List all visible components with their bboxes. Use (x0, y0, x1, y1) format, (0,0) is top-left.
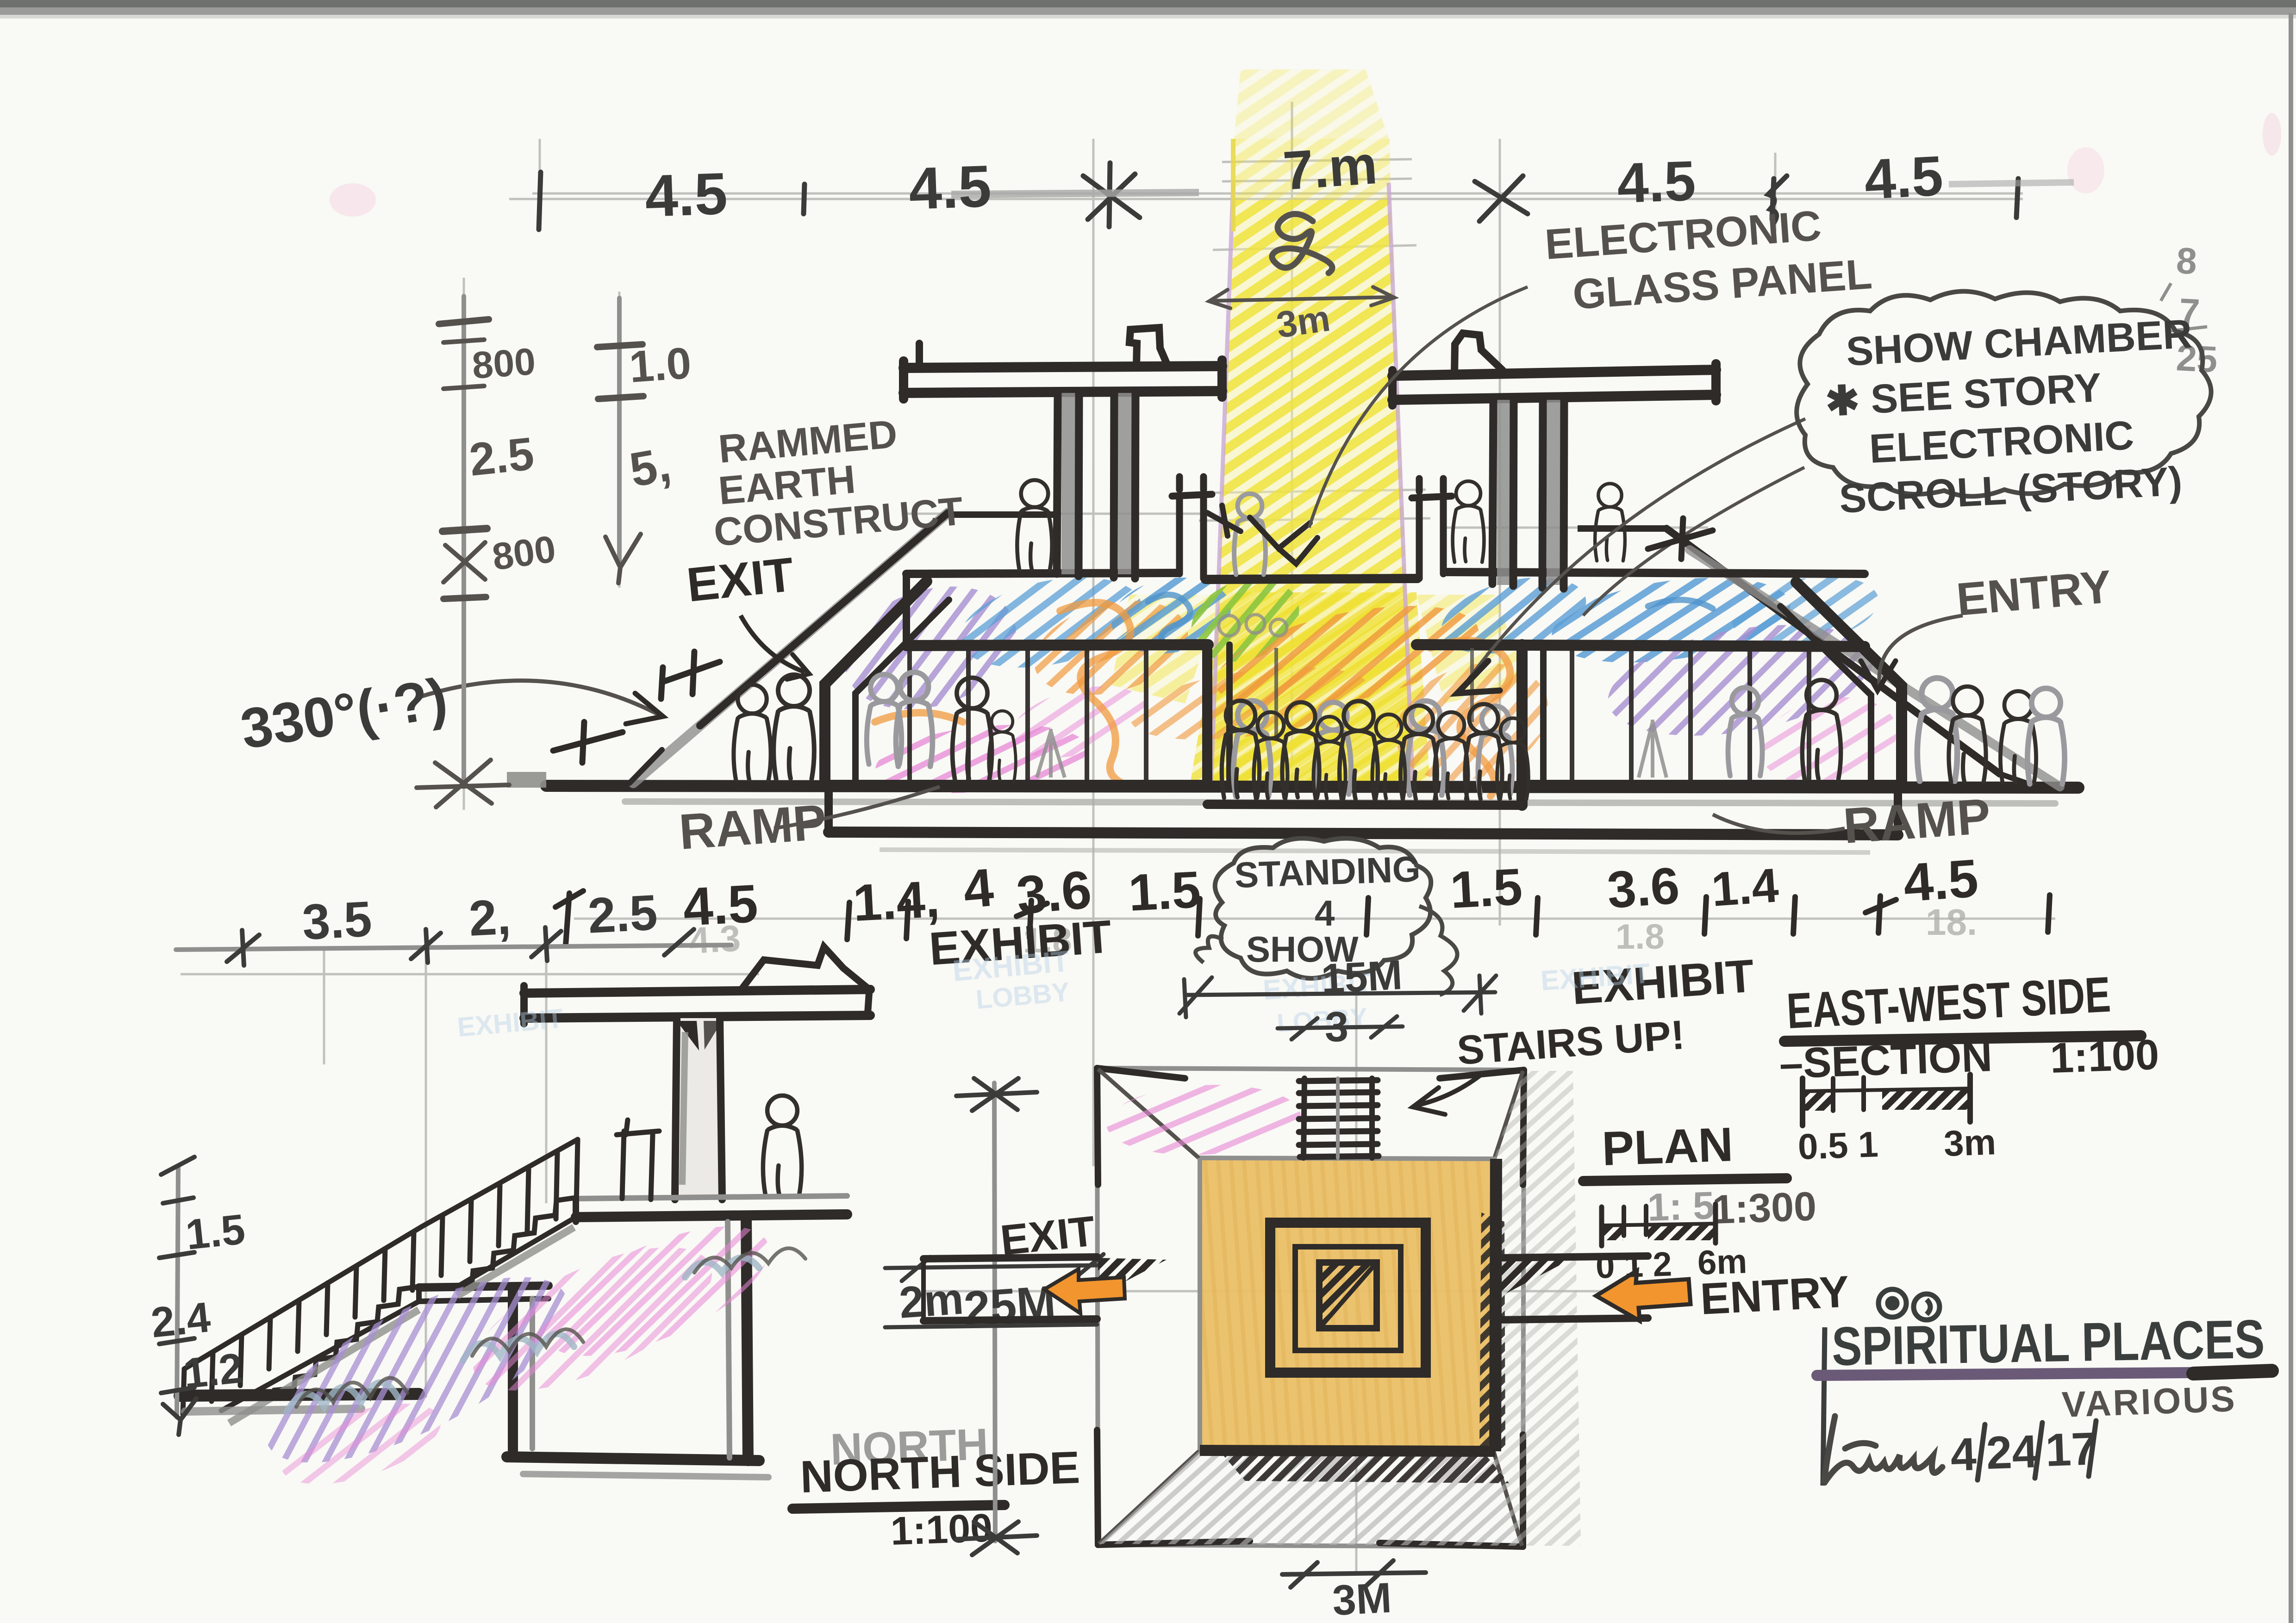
svg-text:15M: 15M (1320, 952, 1404, 1002)
svg-text:18.: 18. (1926, 902, 1977, 943)
svg-text:RAMP: RAMP (1841, 788, 1992, 854)
svg-text:3m: 3m (1943, 1121, 1997, 1164)
svg-text:–SECTION: –SECTION (1778, 1033, 1993, 1088)
svg-text:1.4,: 1.4, (852, 870, 941, 932)
svg-text:RAMP: RAMP (677, 794, 828, 860)
svg-text:STANDING: STANDING (1234, 848, 1421, 895)
svg-text:4: 4 (961, 857, 996, 920)
svg-text:0 1 2: 0 1 2 (1595, 1244, 1672, 1286)
svg-text:2.4: 2.4 (149, 1293, 212, 1347)
svg-text:4: 4 (1950, 1428, 1978, 1481)
svg-text:4: 4 (1315, 893, 1335, 933)
svg-text:6m: 6m (1697, 1242, 1748, 1282)
svg-text:1.2: 1.2 (181, 1344, 245, 1398)
svg-text:1:300: 1:300 (1711, 1183, 1817, 1232)
svg-text:1:100: 1:100 (890, 1505, 993, 1554)
svg-text:VARIOUS: VARIOUS (2061, 1378, 2237, 1425)
svg-text:4.5: 4.5 (908, 153, 992, 222)
svg-text:4.5: 4.5 (1616, 149, 1697, 215)
svg-text:3: 3 (1325, 1003, 1348, 1051)
svg-text:EXIT: EXIT (998, 1207, 1097, 1264)
svg-text:800: 800 (471, 341, 537, 387)
svg-text:1.5: 1.5 (183, 1206, 247, 1259)
svg-text:3.6: 3.6 (1605, 856, 1681, 919)
svg-text:1:100: 1:100 (2049, 1031, 2160, 1082)
svg-text:NORTH SIDE: NORTH SIDE (799, 1442, 1081, 1502)
svg-text:1.0: 1.0 (628, 338, 693, 392)
svg-text:1.8: 1.8 (1616, 917, 1665, 957)
svg-text:25M: 25M (962, 1275, 1058, 1335)
svg-text:EXIT: EXIT (684, 547, 796, 612)
svg-text:800: 800 (490, 528, 558, 578)
svg-text:3M: 3M (1331, 1574, 1393, 1623)
svg-text:1.5: 1.5 (1449, 858, 1524, 919)
svg-text:8: 8 (2175, 240, 2198, 282)
svg-text:4.5: 4.5 (1863, 144, 1944, 211)
svg-text:3.5: 3.5 (301, 890, 373, 950)
svg-text:4.5: 4.5 (644, 161, 729, 230)
svg-text:1.4: 1.4 (1710, 858, 1780, 917)
svg-text:3m: 3m (1274, 298, 1333, 346)
svg-text:1.5: 1.5 (1127, 860, 1202, 922)
svg-text:2.5: 2.5 (586, 884, 659, 944)
svg-text:24: 24 (1985, 1425, 2039, 1479)
svg-text:0.5 1: 0.5 1 (1797, 1124, 1879, 1167)
svg-text:PLAN: PLAN (1601, 1118, 1734, 1176)
svg-text:2.5: 2.5 (467, 428, 537, 486)
svg-text:2,: 2, (468, 888, 512, 946)
svg-text:7.m: 7.m (1281, 134, 1379, 202)
svg-text:4.3: 4.3 (688, 917, 742, 961)
